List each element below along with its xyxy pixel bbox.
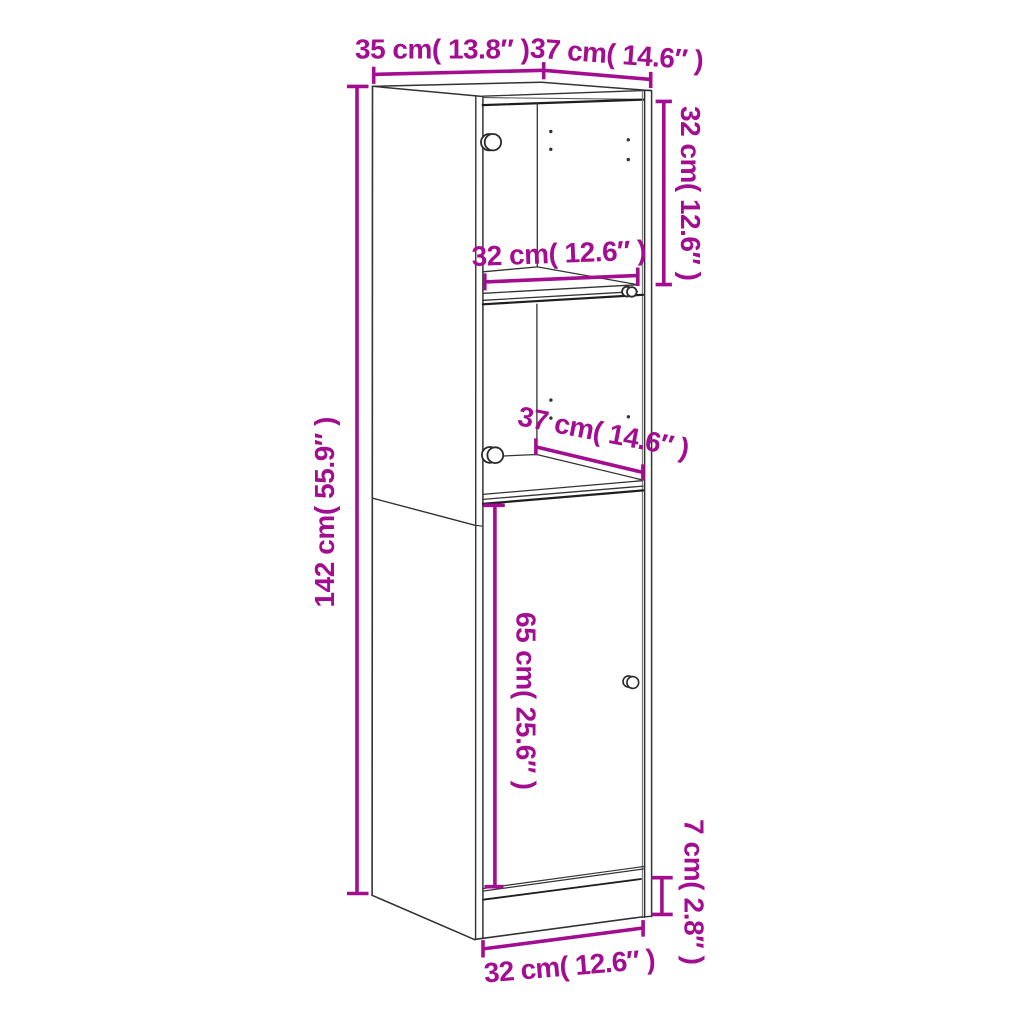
svg-text:35 cm( 13.8″ ): 35 cm( 13.8″ ) (355, 33, 530, 64)
svg-text:7 cm( 2.8″ ): 7 cm( 2.8″ ) (678, 819, 709, 965)
svg-text:142 cm( 55.9″ ): 142 cm( 55.9″ ) (309, 417, 340, 608)
svg-text:32 cm( 12.6″ ): 32 cm( 12.6″ ) (471, 235, 647, 272)
svg-text:32 cm( 12.6″ ): 32 cm( 12.6″ ) (675, 106, 706, 281)
svg-text:65 cm( 25.6″ ): 65 cm( 25.6″ ) (511, 612, 542, 790)
